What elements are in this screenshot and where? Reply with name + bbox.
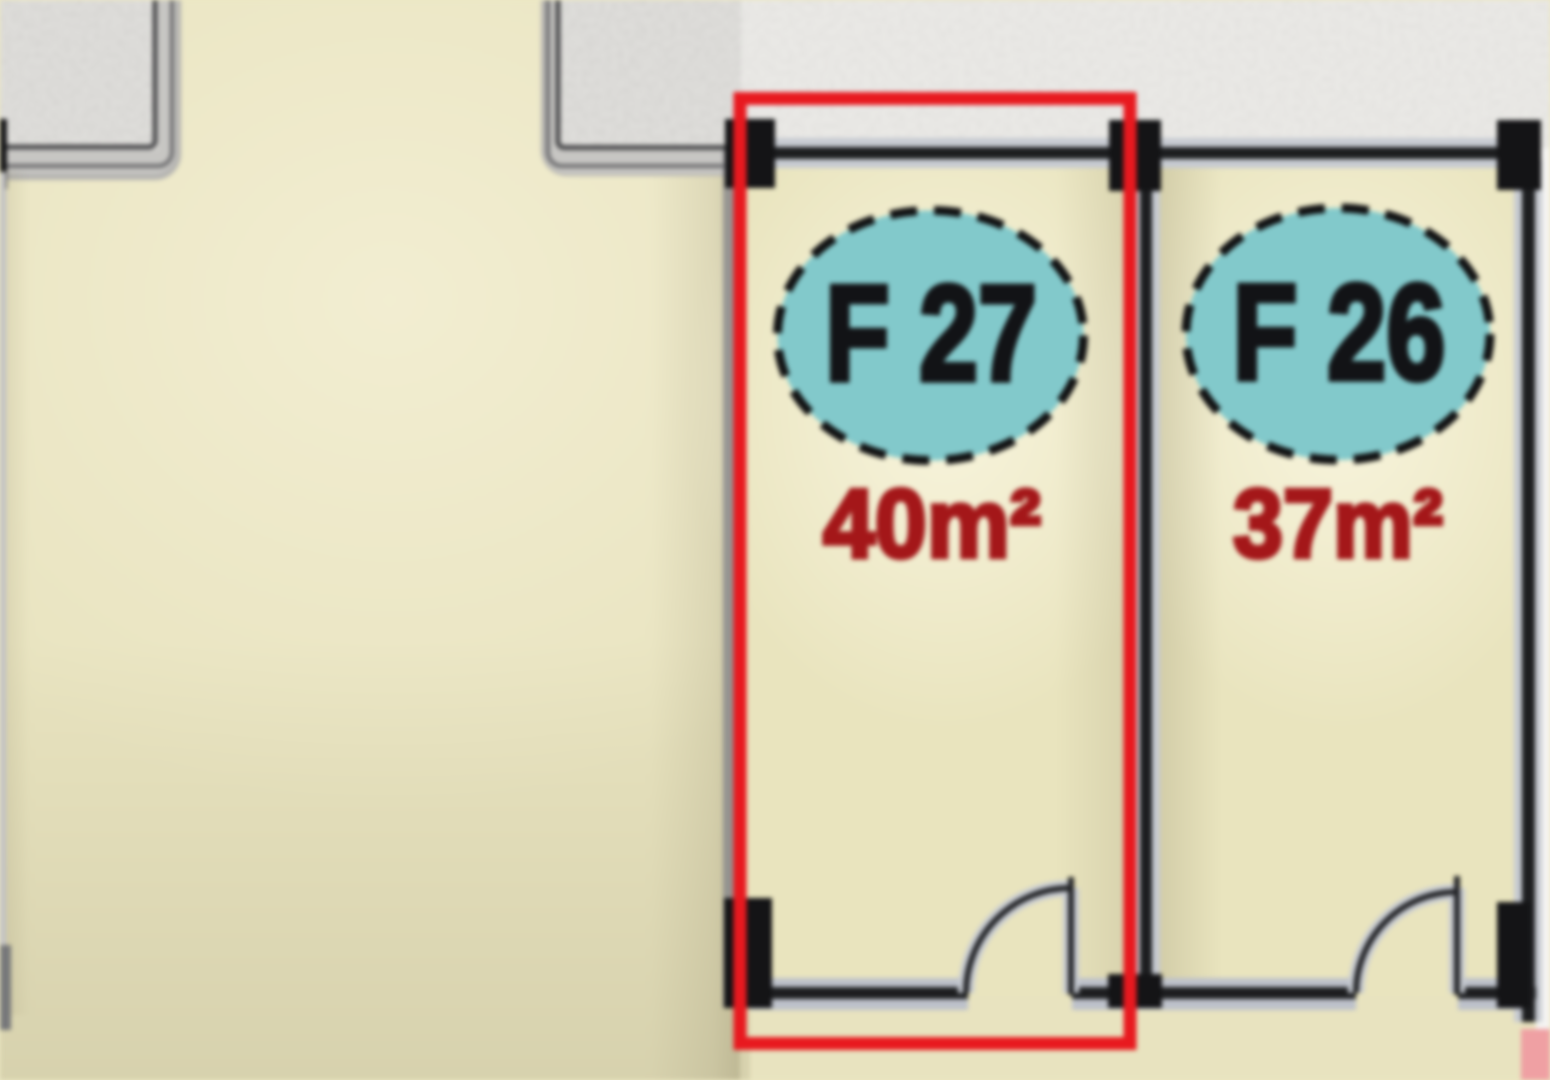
svg-text:40m²: 40m² <box>823 469 1041 578</box>
svg-text:F 26: F 26 <box>1233 256 1446 408</box>
svg-text:37m²: 37m² <box>1233 469 1443 578</box>
svg-text:F 27: F 27 <box>825 257 1037 409</box>
